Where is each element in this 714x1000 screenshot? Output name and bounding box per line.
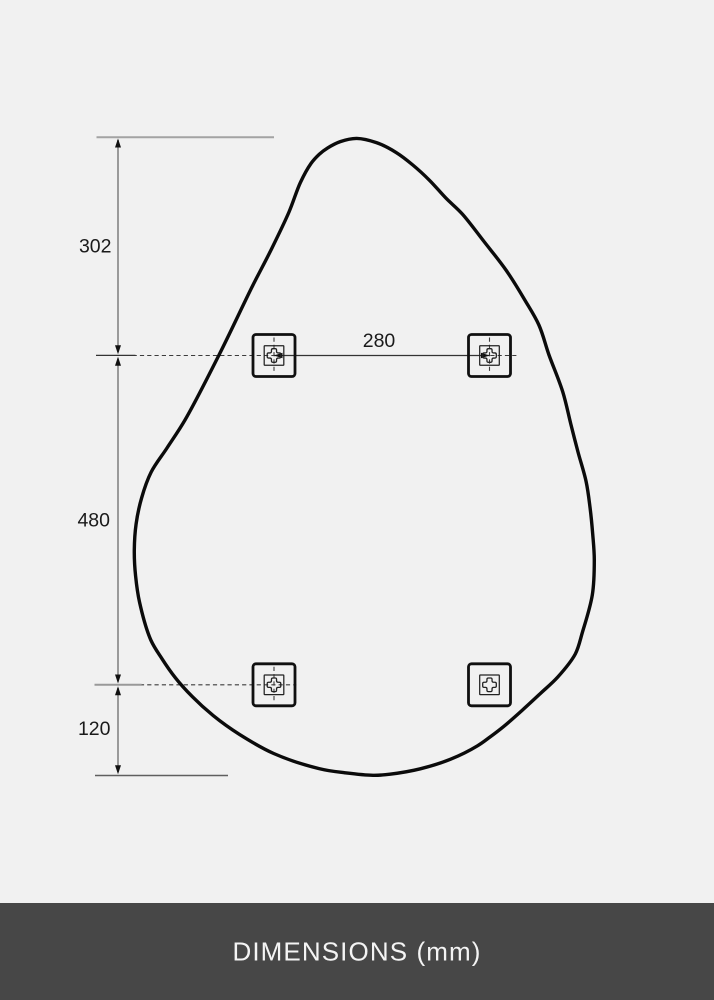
svg-text:280: 280 <box>363 330 396 352</box>
svg-text:302: 302 <box>79 236 112 258</box>
svg-text:DIMENSIONS (mm): DIMENSIONS (mm) <box>232 937 481 967</box>
svg-text:480: 480 <box>77 510 110 532</box>
svg-text:120: 120 <box>78 718 111 740</box>
